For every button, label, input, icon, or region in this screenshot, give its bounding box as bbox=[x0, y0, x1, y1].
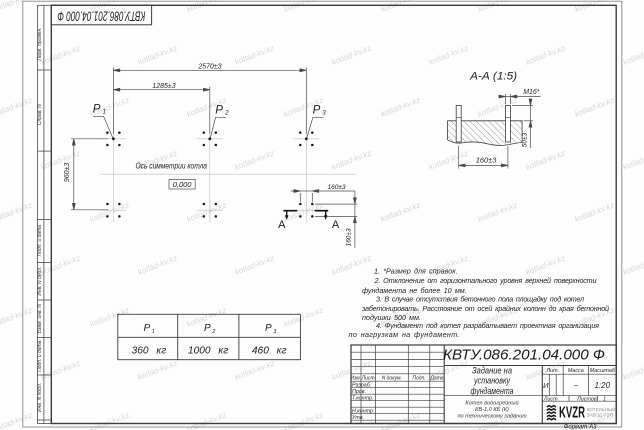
svg-text:160±3: 160±3 bbox=[345, 228, 352, 246]
svg-text:ЗАВОД РЭП: ЗАВОД РЭП bbox=[587, 412, 613, 417]
svg-text:50±3: 50±3 bbox=[522, 132, 529, 147]
svg-text:А: А bbox=[278, 219, 286, 231]
svg-text:Лист: Лист bbox=[361, 376, 375, 382]
svg-text:2: 2 bbox=[211, 329, 215, 335]
svg-text:И: И bbox=[543, 381, 549, 390]
svg-text:по нагрузкам на фундамент.: по нагрузкам на фундамент. bbox=[349, 330, 460, 339]
svg-text:160±3: 160±3 bbox=[476, 156, 497, 165]
svg-text:Изм.: Изм. bbox=[350, 376, 361, 382]
svg-text:КВТУ.086.201.04.000 Ф: КВТУ.086.201.04.000 Ф bbox=[57, 8, 145, 24]
svg-text:0,000: 0,000 bbox=[173, 180, 193, 189]
svg-text:Перв. примен.: Перв. примен. bbox=[37, 27, 43, 60]
svg-text:А: А bbox=[332, 219, 340, 231]
svg-text:2: 2 bbox=[224, 111, 229, 117]
svg-text:Пров.: Пров. bbox=[352, 389, 366, 395]
svg-text:установку: установку bbox=[473, 376, 510, 386]
svg-text:Формат А3: Формат А3 bbox=[564, 424, 597, 430]
svg-text:1: 1 bbox=[103, 110, 106, 116]
svg-text:Котел водогрейный: Котел водогрейный bbox=[465, 399, 518, 406]
svg-text:Н.контр.: Н.контр. bbox=[352, 409, 374, 415]
svg-text:Ось симметрии котла: Ось симметрии котла bbox=[136, 161, 208, 170]
svg-text:КВ-1,0 КБ (К): КВ-1,0 КБ (К) bbox=[475, 407, 509, 413]
svg-text:P: P bbox=[313, 105, 321, 117]
svg-text:Листов: Листов bbox=[576, 397, 597, 403]
svg-text:Масса: Масса bbox=[568, 368, 584, 374]
svg-text:P: P bbox=[265, 323, 272, 334]
svg-text:1: 1 bbox=[152, 329, 155, 335]
svg-text:КОТЕЛЬНЫЙ: КОТЕЛЬНЫЙ bbox=[587, 405, 616, 412]
svg-text:Взам. инв. N: Взам. инв. N bbox=[37, 304, 43, 334]
svg-text:КВТУ.086.201.04.000 Ф: КВТУ.086.201.04.000 Ф bbox=[443, 348, 605, 364]
svg-text:960±3: 960±3 bbox=[64, 163, 71, 183]
svg-text:P: P bbox=[204, 323, 211, 334]
svg-text:фундамента не более 10 мм.: фундамента не более 10 мм. bbox=[362, 286, 467, 295]
svg-text:1. *Размер для справок.: 1. *Размер для справок. bbox=[374, 266, 458, 275]
svg-text:P: P bbox=[93, 104, 101, 116]
svg-text:Лист: Лист bbox=[543, 397, 558, 403]
svg-text:Масштаб: Масштаб bbox=[590, 368, 616, 374]
svg-text:460 кг: 460 кг bbox=[252, 345, 287, 356]
svg-text:360 кг: 360 кг bbox=[132, 345, 167, 356]
svg-text:P: P bbox=[215, 105, 223, 117]
svg-text:Дата: Дата bbox=[429, 376, 443, 382]
svg-text:1:20: 1:20 bbox=[595, 381, 611, 390]
svg-text:160±3: 160±3 bbox=[327, 184, 345, 191]
svg-text:по техническому заданию: по техническому заданию bbox=[457, 414, 527, 420]
svg-text:3. В случае отсутствия бетонно: 3. В случае отсутствия бетонного пола пл… bbox=[376, 295, 584, 304]
svg-text:1000 кг: 1000 кг bbox=[188, 345, 228, 356]
svg-text:KVZR: KVZR bbox=[559, 405, 585, 422]
svg-text:Справ. N: Справ. N bbox=[37, 104, 43, 125]
svg-text:Разраб.: Разраб. bbox=[352, 383, 371, 389]
svg-text:Инв. N подл.: Инв. N подл. bbox=[37, 383, 43, 412]
svg-text:1: 1 bbox=[603, 397, 606, 403]
svg-text:М16*: М16* bbox=[523, 89, 540, 96]
svg-text:забетонировать. Расстояние от: забетонировать. Расстояние от осей крайн… bbox=[361, 304, 609, 313]
svg-text:–: – bbox=[573, 380, 579, 389]
svg-text:Задание на: Задание на bbox=[472, 366, 512, 376]
svg-text:Инв. N дубл.: Инв. N дубл. bbox=[37, 267, 43, 296]
svg-text:Подп. и дата: Подп. и дата bbox=[37, 225, 43, 257]
svg-text:4. Фундамент под котел разраба: 4. Фундамент под котел разрабатывает про… bbox=[376, 321, 599, 330]
svg-text:Лит.: Лит. bbox=[545, 368, 559, 374]
svg-text:N докум.: N докум. bbox=[382, 376, 402, 382]
svg-text:2. Отклонение от горизонтально: 2. Отклонение от горизонтального уровня … bbox=[374, 276, 597, 285]
svg-text:Подп.: Подп. bbox=[412, 376, 425, 382]
svg-text:P: P bbox=[144, 323, 151, 334]
svg-text:Утв.: Утв. bbox=[352, 415, 364, 421]
svg-text:Подп. и дата: Подп. и дата bbox=[37, 340, 43, 372]
svg-text:фундамента: фундамента bbox=[471, 386, 514, 396]
svg-text:2570±3: 2570±3 bbox=[197, 64, 221, 71]
svg-text:1285±3: 1285±3 bbox=[152, 83, 175, 90]
svg-text:А-А (1:5): А-А (1:5) bbox=[469, 70, 517, 82]
svg-text:Т.контр.: Т.контр. bbox=[352, 396, 373, 402]
